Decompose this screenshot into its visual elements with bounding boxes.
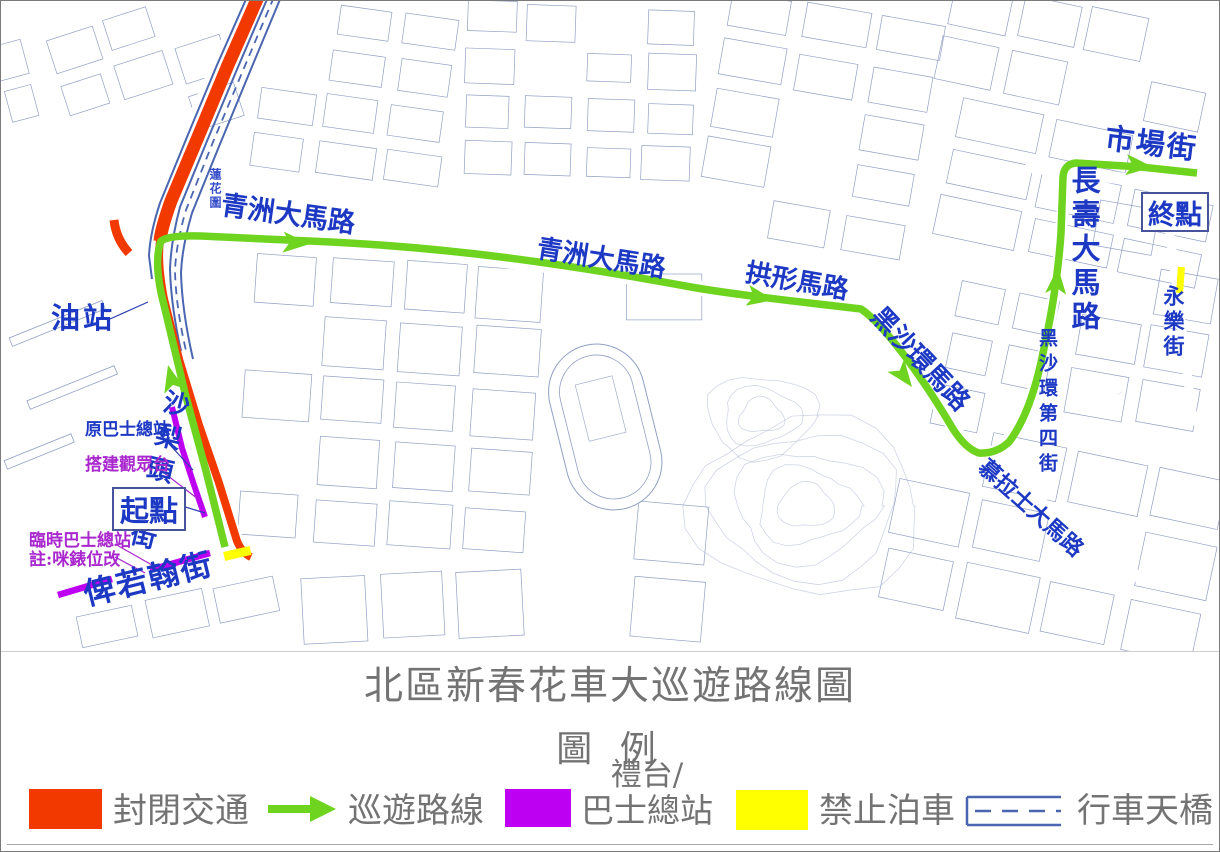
label-meter-note: 註:咪錶位改 (29, 552, 120, 569)
start-point-label: 起點 (120, 488, 178, 530)
legend-no-parking-swatch (736, 790, 808, 830)
legend-no-parking-label: 禁止泊車 (819, 791, 955, 831)
label-yongle: 永樂街 (1163, 285, 1184, 360)
start-point-box: 起點 (112, 487, 186, 531)
label-gas-station: 油站 (51, 304, 115, 333)
label-lianhua: 蓮花圍 (209, 168, 221, 210)
legend-stage-label-line2: 巴士總站 (577, 793, 717, 828)
map-title: 北區新春花車大巡遊路線圖 (1, 655, 1219, 711)
map-canvas: 油站 蓮花圍 青洲大馬路 青洲大馬路 拱形馬路 黑沙環馬路 黑沙環第四街 慕拉士… (1, 1, 1220, 652)
label-changshou: 長壽大馬路 (1069, 165, 1098, 335)
legend-closed-traffic-swatch (29, 789, 102, 829)
label-former-bus-terminal: 原巴士總站 (85, 422, 170, 439)
parade-route-map-page: 油站 蓮花圍 青洲大馬路 青洲大馬路 拱形馬路 黑沙環馬路 黑沙環第四街 慕拉士… (0, 0, 1220, 852)
label-heisha-4th: 黑沙環第四街 (1037, 328, 1056, 478)
legend-stage-label: 禮台/ 巴士總站 (577, 758, 717, 828)
label-spectator-stand: 搭建觀眾台 (85, 457, 170, 474)
legend-stage-label-line1: 禮台/ (577, 758, 717, 793)
end-point-label: 終點 (1148, 193, 1202, 232)
label-temp-bus-terminal: 臨時巴士總站 (29, 533, 131, 550)
legend-route-label: 巡遊路線 (348, 791, 484, 831)
end-point-box: 終點 (1141, 192, 1209, 232)
hill-contours (683, 378, 915, 595)
legend-route-arrow-icon (268, 795, 338, 823)
legend-closed-traffic-label: 封閉交通 (113, 791, 249, 831)
stadium-oval (538, 334, 672, 520)
legend-flyover-icon (965, 793, 1063, 829)
bottom-rule (7, 844, 1213, 845)
legend-flyover-label: 行車天橋 (1077, 791, 1213, 831)
legend-stage-swatch (505, 789, 571, 827)
